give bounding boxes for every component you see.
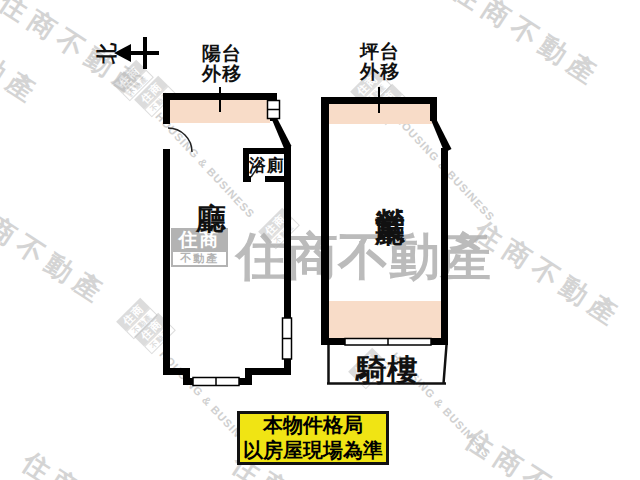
- floorplan-image: 住商不動產 住商不動產 住商不動產 住商不動產 住商不動產 住商不動產 住商不動…: [0, 0, 640, 480]
- left-unit-walls: [163, 93, 292, 385]
- right-platform-annotation: 坪台 外移: [352, 42, 408, 82]
- floorplan-drawing: [0, 0, 640, 480]
- storefront-window: [345, 339, 431, 346]
- disclaimer-box: 本物件格局 以房屋現場為準: [237, 411, 389, 465]
- left-unit-windows: [193, 101, 292, 386]
- disclaimer-text: 本物件格局 以房屋現場為準: [243, 413, 383, 463]
- entry-door-arc: [168, 128, 192, 152]
- right-bottom-fill: [329, 301, 441, 339]
- left-balcony-annotation: 陽台 外移: [194, 44, 250, 84]
- living-room-label: 廳: [196, 199, 227, 240]
- north-arrow-icon: [114, 37, 159, 69]
- right-platform-fill: [329, 104, 432, 124]
- business-hall-label: 營業廳: [369, 183, 410, 295]
- arcade-label: 騎樓: [347, 350, 427, 391]
- bathroom-label: 浴廁: [249, 154, 285, 177]
- north-label: 北: [93, 42, 115, 64]
